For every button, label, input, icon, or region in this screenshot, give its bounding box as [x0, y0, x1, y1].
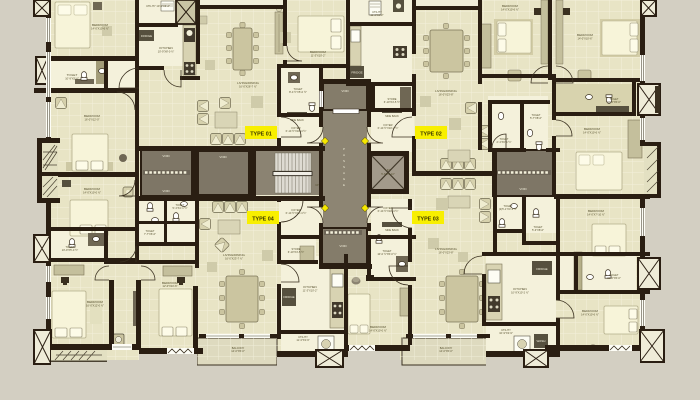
svg-text:S: S — [343, 159, 345, 163]
svg-text:VOID: VOID — [339, 244, 347, 248]
svg-text:BALCONY14'-0"X5'-0": BALCONY14'-0"X5'-0" — [231, 346, 245, 353]
svg-text:BEDROOM14'-0"X10'-6 ½": BEDROOM14'-0"X10'-6 ½" — [91, 23, 109, 31]
svg-text:TOILET10'-9"X5'-0": TOILET10'-9"X5'-0" — [65, 73, 79, 80]
svg-text:BEDROOM14'-0"X10'-6 ½": BEDROOM14'-0"X10'-6 ½" — [581, 309, 599, 316]
svg-text:UP: UP — [315, 183, 319, 187]
svg-text:VOID: VOID — [341, 89, 349, 93]
svg-text:WASH: WASH — [537, 339, 546, 343]
svg-text:TYPE 04: TYPE 04 — [252, 217, 274, 223]
svg-text:UTILITY11'-3"X3'-2": UTILITY11'-3"X3'-2" — [370, 10, 383, 17]
svg-text:BEDROOM14'-0"X10'-6 ½": BEDROOM14'-0"X10'-6 ½" — [501, 4, 519, 11]
svg-text:BEDROOM11'-3"X10'-2": BEDROOM11'-3"X10'-2" — [310, 50, 326, 57]
svg-text:TYPE 02: TYPE 02 — [420, 132, 442, 138]
svg-text:TOILET5'-7"X8'-0": TOILET5'-7"X8'-0" — [530, 113, 542, 120]
svg-text:KITCHEN11'-3"X10'-2": KITCHEN11'-3"X10'-2" — [303, 285, 318, 292]
svg-text:BEDROOM16'-0"X12'-0": BEDROOM16'-0"X12'-0" — [84, 114, 100, 122]
svg-text:KITCHEN10'-9"X10'-2 ½": KITCHEN10'-9"X10'-2 ½" — [511, 287, 529, 294]
svg-text:P: P — [343, 147, 345, 151]
svg-text:TOILET7'-7"X6'-0": TOILET7'-7"X6'-0" — [144, 229, 156, 236]
svg-text:VOID: VOID — [219, 155, 227, 159]
svg-text:A: A — [343, 153, 345, 157]
svg-text:BEDROOM14'-0"X10'-0 ½": BEDROOM14'-0"X10'-0 ½" — [83, 187, 101, 194]
svg-text:A: A — [343, 171, 345, 175]
svg-text:BEDROOM12'-0"X10'-6": BEDROOM12'-0"X10'-6" — [162, 281, 178, 288]
svg-text:LIVING/DINING16'-0"X23'-7 ½": LIVING/DINING16'-0"X23'-7 ½" — [223, 253, 245, 261]
svg-text:UTILITY 10'-9"X3'-2": UTILITY 10'-9"X3'-2" — [146, 4, 170, 8]
svg-text:FRIDGE: FRIDGE — [536, 267, 547, 271]
svg-text:VOID: VOID — [162, 189, 170, 193]
svg-text:SIDE BACK: SIDE BACK — [385, 228, 399, 232]
svg-text:E: E — [343, 183, 345, 187]
svg-text:UTILITY10'-9"X3'-9": UTILITY10'-9"X3'-9" — [499, 328, 513, 335]
svg-text:VOID: VOID — [162, 154, 170, 158]
svg-text:TYPE 01: TYPE 01 — [250, 132, 272, 138]
svg-text:BEDROOM14'-0"X10'-0 ½": BEDROOM14'-0"X10'-0 ½" — [369, 325, 387, 332]
svg-text:S: S — [343, 165, 345, 169]
svg-text:FRIDGE: FRIDGE — [351, 71, 362, 75]
svg-text:BEDROOM14'-0"X10'-6": BEDROOM14'-0"X10'-6" — [577, 33, 593, 40]
svg-text:5'-6"X4'-10": 5'-6"X4'-10" — [381, 172, 395, 176]
svg-text:TYPE 03: TYPE 03 — [417, 217, 439, 223]
svg-text:SIDE BACK: SIDE BACK — [385, 114, 399, 118]
svg-text:VOID: VOID — [519, 187, 527, 191]
svg-text:FRIDGE: FRIDGE — [141, 34, 152, 38]
svg-text:BALCONY14'-0"X5'-0": BALCONY14'-0"X5'-0" — [439, 346, 453, 353]
svg-text:FRIDGE: FRIDGE — [283, 295, 294, 299]
svg-text:LIVING/DINING16'-0"X26'-7 ½": LIVING/DINING16'-0"X26'-7 ½" — [237, 81, 259, 89]
svg-text:BEDROOM16'-0"X12'-0 ½": BEDROOM16'-0"X12'-0 ½" — [86, 300, 104, 307]
svg-text:UTILITY11'-3"X3'-9": UTILITY11'-3"X3'-9" — [296, 335, 309, 342]
svg-text:LIFT: LIFT — [385, 168, 391, 172]
svg-text:BEDROOM14'-0"X7'-10 ½": BEDROOM14'-0"X7'-10 ½" — [587, 209, 605, 216]
svg-text:KITCHEN10'-9"X8'-0 ½": KITCHEN10'-9"X8'-0 ½" — [158, 46, 174, 53]
svg-text:BEDROOM14'-0"X10'-6 ½": BEDROOM14'-0"X10'-6 ½" — [583, 127, 601, 134]
svg-text:TOILET5'-3"X8'-0": TOILET5'-3"X8'-0" — [532, 225, 544, 232]
